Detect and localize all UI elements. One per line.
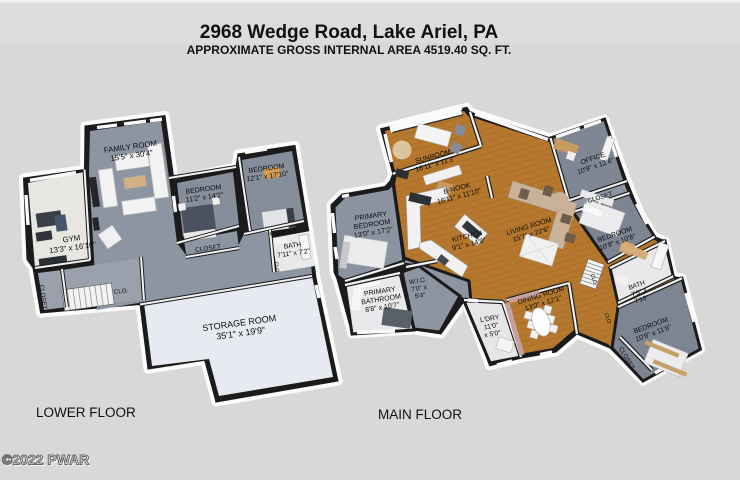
svg-text:LOWER FLOOR: LOWER FLOOR [36,405,136,420]
svg-text:MAIN FLOOR: MAIN FLOOR [378,407,462,422]
svg-text:APPROXIMATE GROSS INTERNAL ARE: APPROXIMATE GROSS INTERNAL AREA 4519.40 … [187,43,512,57]
svg-text:©2022 PWAR: ©2022 PWAR [2,452,89,468]
svg-text:2968 Wedge Road, Lake Ariel, P: 2968 Wedge Road, Lake Ariel, PA [200,22,499,43]
